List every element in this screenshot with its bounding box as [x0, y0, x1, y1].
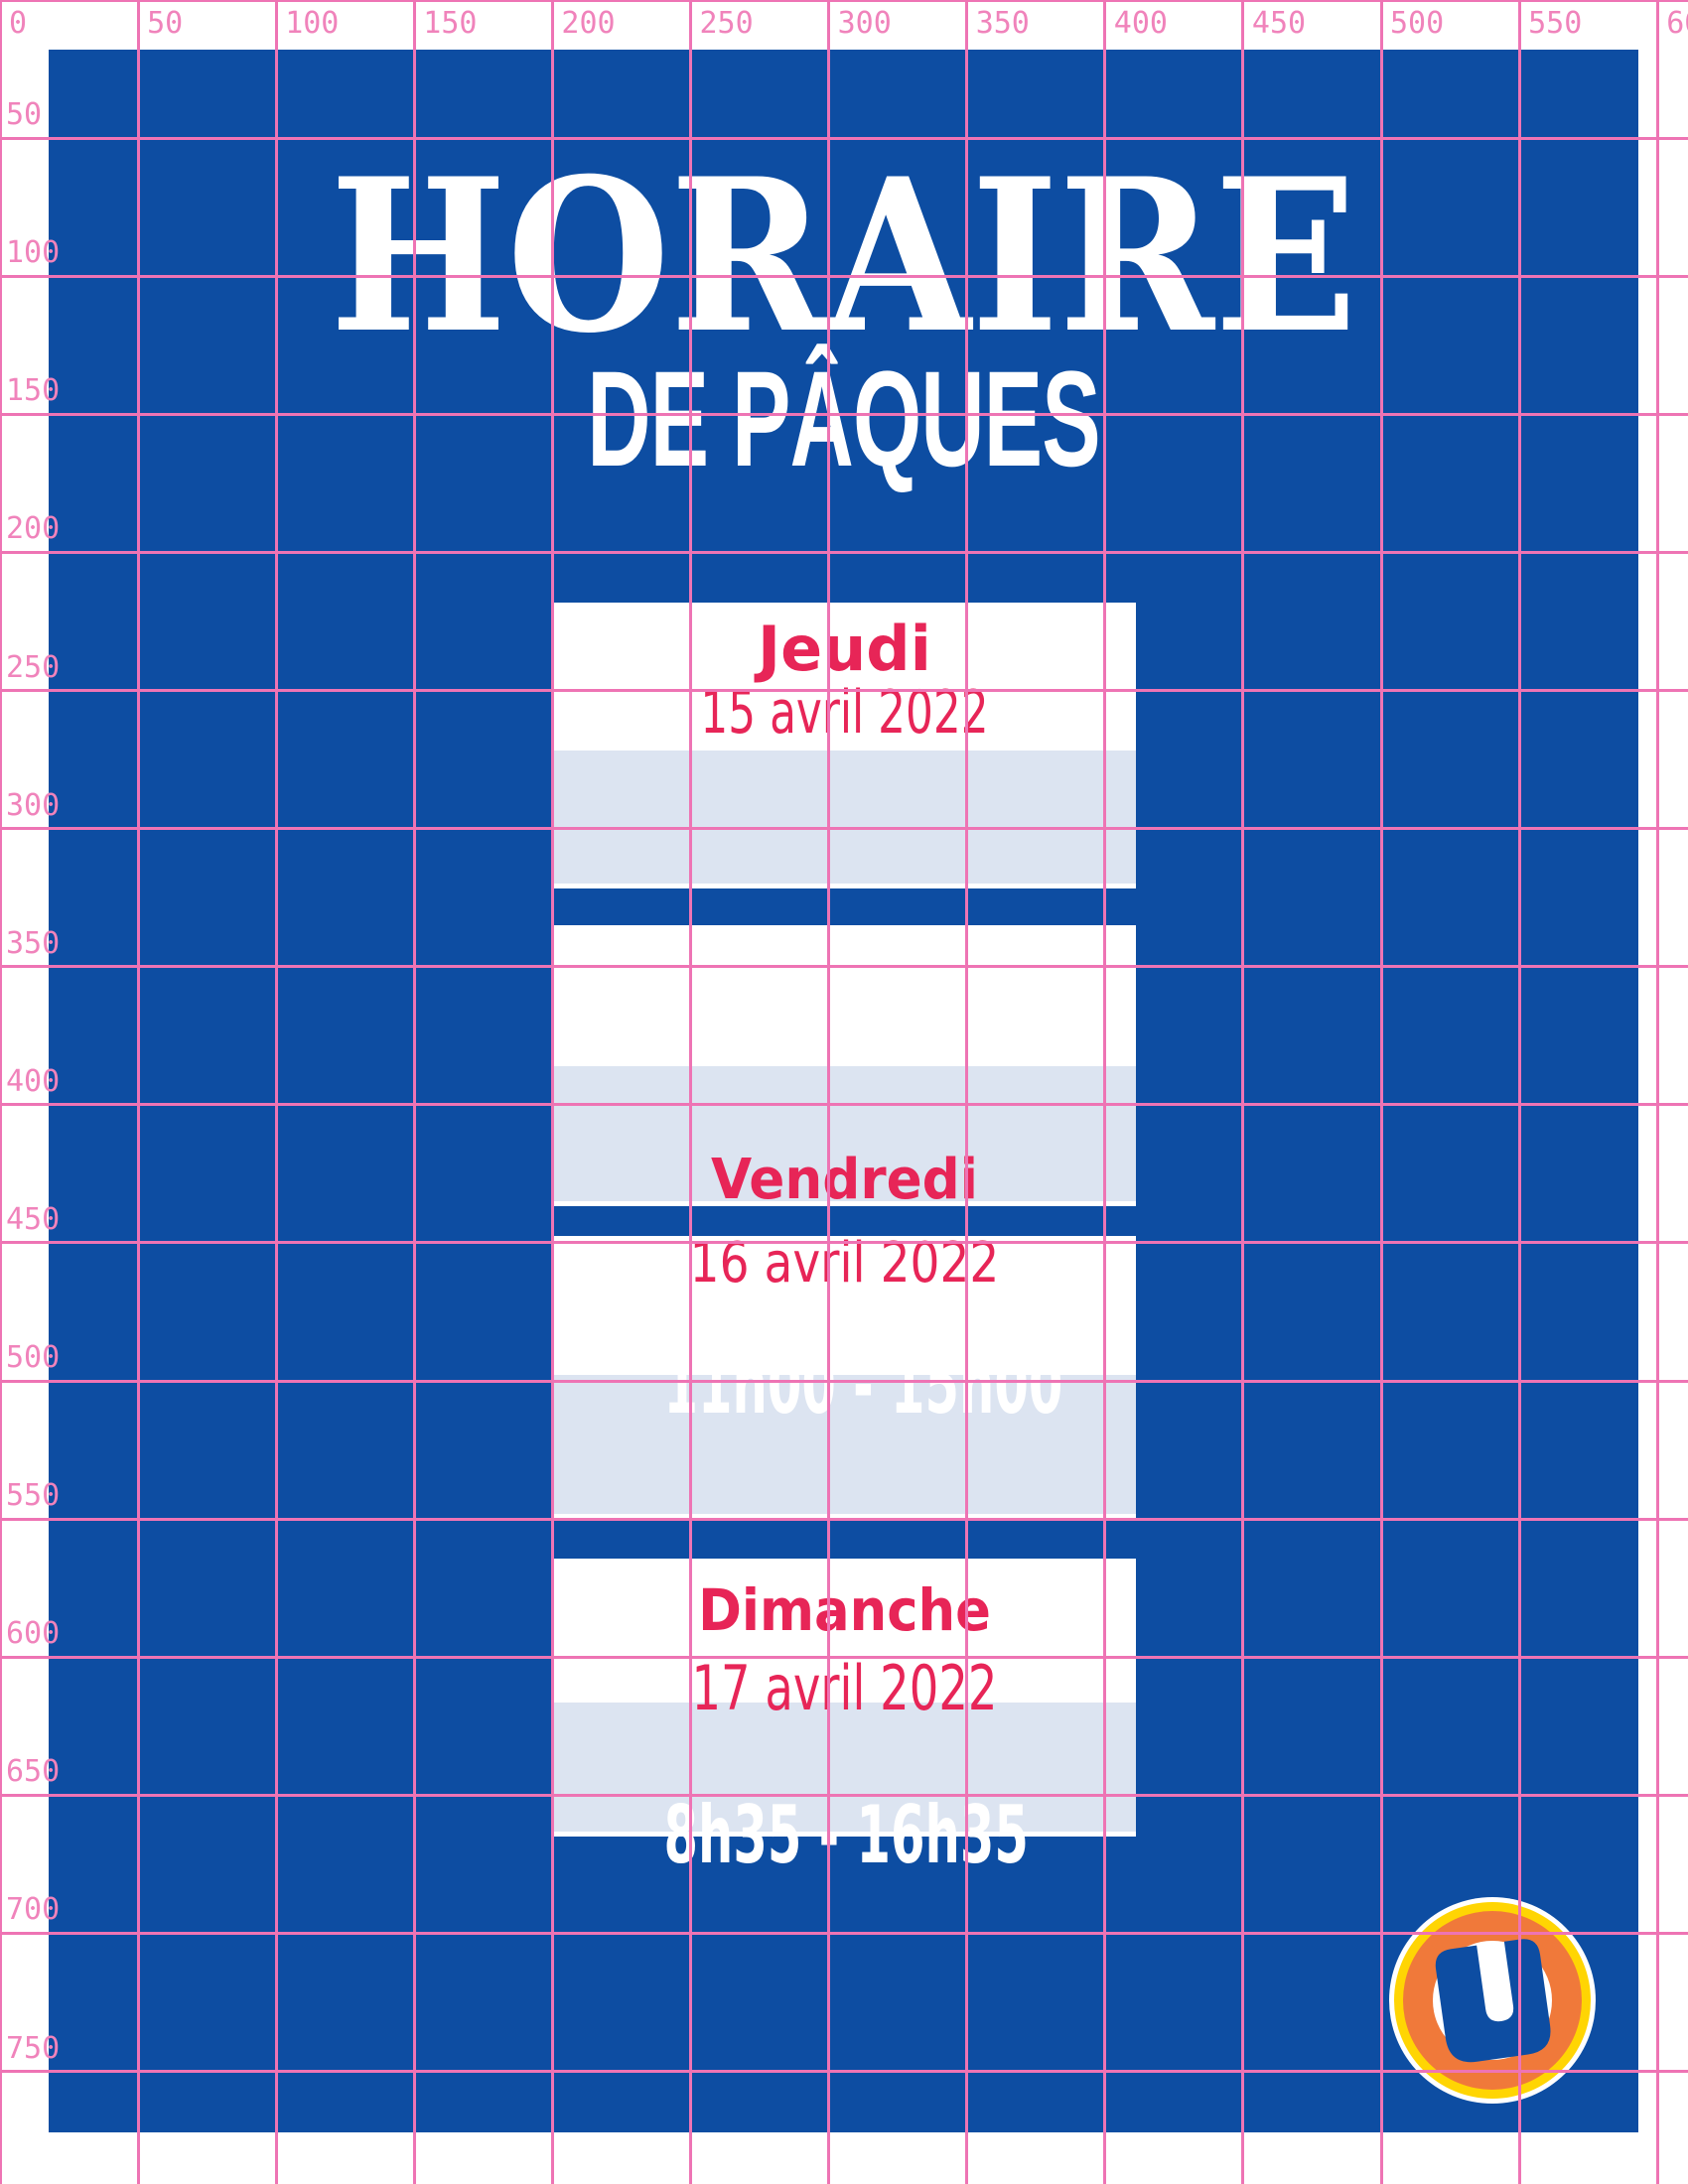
- schedule-card-dimanche: Dimanche 17 avril 2022 8h35 - 16h35: [553, 1559, 1136, 1837]
- ruler-label-top-550: 550: [1528, 9, 1582, 39]
- date-label: 16 avril 2022: [600, 1236, 1089, 1292]
- ruler-label-top-400: 400: [1114, 9, 1168, 39]
- u-brand-logo: [1389, 1897, 1596, 2104]
- date-label: 15 avril 2022: [632, 683, 1057, 743]
- ruler-label-top-50: 50: [147, 9, 183, 39]
- ruler-label-top-100: 100: [285, 9, 339, 39]
- ruler-label-top-300: 300: [838, 9, 892, 39]
- day-label: Dimanche: [579, 1581, 1109, 1639]
- ruler-label-top-500: 500: [1390, 9, 1444, 39]
- hours-band: [553, 751, 1136, 884]
- hours-label: 11h00 - 15h00: [664, 1346, 1026, 1426]
- ruler-label-top-0: 0: [9, 9, 27, 39]
- grid-hline: [0, 0, 1688, 2]
- ruler-label-top-600: 600: [1666, 9, 1688, 39]
- ruler-label-top-150: 150: [423, 9, 477, 39]
- u-letter-icon: [1389, 1897, 1596, 2104]
- day-label: Vendredi: [568, 1153, 1122, 1208]
- grid-vline: [1656, 0, 1659, 2184]
- schedule-card-samedi: 16 avril 2022 11h00 - 15h00: [553, 1236, 1136, 1519]
- day-label: Jeudi: [553, 618, 1136, 680]
- poster-subtitle: DE PÂQUES: [327, 320, 1360, 518]
- grid-vline: [0, 0, 2, 2184]
- schedule-card-jeudi: Jeudi 15 avril 2022: [553, 603, 1136, 888]
- ruler-label-top-250: 250: [700, 9, 754, 39]
- schedule-card-vendredi: Vendredi: [553, 925, 1136, 1206]
- ruler-label-top-200: 200: [561, 9, 615, 39]
- date-label: 17 avril 2022: [626, 1658, 1062, 1719]
- ruler-label-left-50: 50: [6, 100, 42, 130]
- ruler-label-top-450: 450: [1252, 9, 1306, 39]
- hours-label: 8h35 - 16h35: [664, 1796, 1026, 1875]
- ruler-label-top-350: 350: [976, 9, 1030, 39]
- design-canvas: HORAIRE DE PÂQUES Jeudi 15 avril 2022 Ve…: [0, 0, 1688, 2184]
